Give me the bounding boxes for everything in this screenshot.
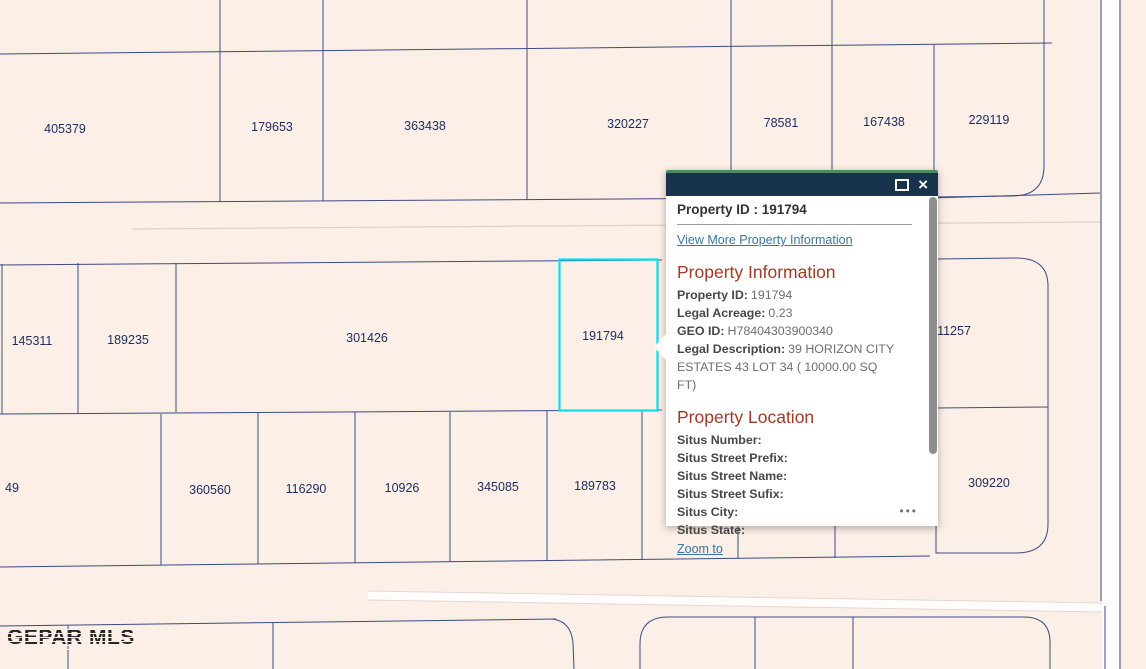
parcel-label-selected: 191794 (582, 329, 624, 343)
parcel-label: 11257 (937, 324, 971, 338)
parcel-label: 360560 (189, 483, 231, 497)
popup-title: Property ID : 191794 (677, 202, 914, 217)
info-row: Property ID:191794 (677, 286, 914, 304)
parcel-label: 179653 (251, 120, 293, 134)
property-popup: × Property ID : 191794 View More Propert… (666, 170, 938, 526)
parcel-label: 78581 (764, 116, 799, 130)
property-information-heading: Property Information (677, 262, 914, 283)
popup-body: Property ID : 191794 View More Property … (666, 196, 938, 526)
popup-pointer (654, 334, 666, 360)
parcel-label: 189783 (574, 479, 616, 493)
road-line (132, 222, 1100, 229)
maximize-icon[interactable] (895, 179, 909, 191)
view-more-property-link[interactable]: View More Property Information (677, 231, 853, 249)
parcel-label: 116290 (286, 482, 327, 496)
parcel-label: 167438 (863, 115, 905, 129)
parcel-map[interactable] (0, 0, 1146, 669)
property-location-heading: Property Location (677, 407, 914, 428)
zoom-to-link[interactable]: Zoom to (677, 540, 723, 558)
title-divider (677, 224, 912, 225)
parcel-label: 145311 (12, 334, 53, 348)
parcel-label: 363438 (404, 119, 446, 133)
parcel-label: 405379 (44, 122, 86, 136)
parcel-label: 301426 (346, 331, 388, 345)
popup-scrollbar-thumb[interactable] (929, 197, 937, 454)
parcel-label: 309220 (968, 476, 1010, 490)
location-row: Situs Street Name: (677, 467, 914, 485)
parcel-label: 189235 (107, 333, 149, 347)
parcel-label: 229119 (969, 113, 1010, 127)
location-row: Situs Street Prefix: (677, 449, 914, 467)
location-row: Situs State: (677, 521, 914, 539)
map-viewport[interactable]: 405379 179653 363438 320227 78581 167438… (0, 0, 1146, 669)
parcel-label: 49 (5, 481, 19, 495)
info-row: Legal Description:39 HORIZON CITY ESTATE… (677, 340, 895, 394)
parcel-label: 345085 (477, 480, 519, 494)
popup-header: × (666, 170, 938, 196)
close-icon[interactable]: × (918, 177, 928, 193)
parcel-label: 320227 (607, 117, 649, 131)
gepar-mls-watermark: GEPAR MLS (7, 626, 135, 650)
location-row: Situs Street Sufix: (677, 485, 914, 503)
info-row: Legal Acreage:0.23 (677, 304, 914, 322)
info-row: GEO ID:H78404303900340 (677, 322, 914, 340)
more-options-icon[interactable]: ••• (899, 502, 918, 520)
location-row: Situs City: (677, 503, 914, 521)
location-row: Situs Number: (677, 431, 914, 449)
popup-scrollbar-track[interactable] (929, 197, 937, 525)
parcel-label: 10926 (385, 481, 420, 495)
